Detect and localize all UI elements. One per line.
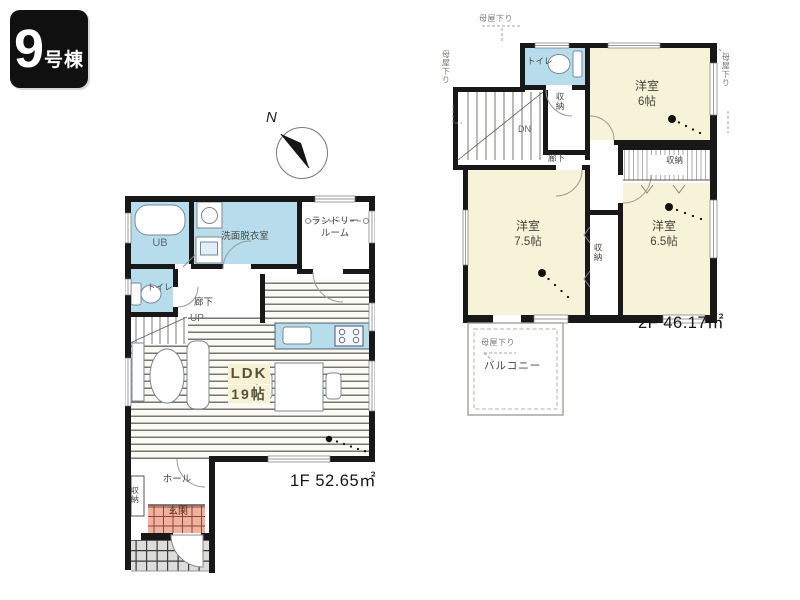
bedroom-6-name: 洋室 — [612, 79, 682, 95]
toilet-tank-2f — [573, 51, 582, 77]
rug-table — [150, 349, 184, 403]
roof-annotation-balcony: 母屋下り — [481, 338, 515, 348]
bedroom-65-size: 6.5帖 — [629, 235, 699, 250]
hall-label: ホール — [147, 474, 207, 486]
chair-right — [326, 373, 341, 399]
bedroom-65-name: 洋室 — [629, 219, 699, 235]
area-1f-label: 1F 52.65㎡ — [290, 471, 376, 492]
ldk-label: LDK 19帖 — [214, 364, 284, 406]
floorplan-page: 9 号棟 N — [0, 0, 800, 600]
laundry-line2: ルーム — [300, 228, 370, 240]
washing-machine — [197, 202, 222, 228]
closet-center-label: 収納 — [592, 243, 603, 262]
bathtub — [135, 205, 185, 235]
bedroom-75-label: 洋室 7.5帖 — [493, 219, 563, 250]
bedroom-6-size: 6帖 — [612, 95, 682, 110]
building-number: 9 — [14, 22, 44, 76]
roof-annotation-right: 母屋下り — [720, 53, 730, 87]
kitchen-sink — [283, 327, 311, 344]
roof-annotation-left: 母屋下り — [440, 50, 450, 84]
toilet-tank-1f — [131, 283, 141, 305]
ldk-size: 19帖 — [228, 385, 270, 403]
laundry-room-label: ランドリー ルーム — [300, 216, 370, 241]
closet-hall-label: 収納 — [554, 92, 565, 111]
stairs-down-label: DN — [518, 124, 531, 136]
hallway-1f-label: 廊下 — [194, 297, 213, 309]
stove — [335, 326, 363, 346]
ub-label: UB — [140, 236, 180, 250]
toilet-1f-label: トイレ — [147, 282, 173, 293]
closet-wall-label: 収納 — [666, 155, 683, 166]
balcony-label: バルコニー — [484, 360, 541, 374]
bedroom-6-label: 洋室 6帖 — [612, 79, 682, 110]
hallway-2f-label: 廊下 — [548, 153, 565, 164]
compass-needle-icon — [271, 122, 331, 182]
bedroom-75-name: 洋室 — [493, 219, 563, 235]
area-2f-label: 2F 46.17㎡ — [638, 313, 724, 334]
building-number-badge: 9 号棟 — [10, 10, 88, 88]
laundry-line1: ランドリー — [300, 216, 370, 228]
sofa — [187, 341, 209, 409]
building-number-suffix: 号棟 — [44, 45, 84, 72]
tv-board — [132, 343, 144, 401]
washroom-label: 洗面脱衣室 — [205, 231, 285, 243]
bedroom-65-label: 洋室 6.5帖 — [629, 219, 699, 250]
storage-1f-label: 収納 — [129, 486, 139, 504]
entrance-label: 玄関 — [148, 505, 208, 518]
toilet-2f-label: トイレ — [527, 56, 553, 67]
stairs-up-label: UP — [190, 312, 204, 325]
roof-annotation-top: 母屋下り — [479, 14, 513, 24]
bedroom-75-size: 7.5帖 — [493, 235, 563, 250]
ldk-name: LDK — [228, 364, 271, 384]
